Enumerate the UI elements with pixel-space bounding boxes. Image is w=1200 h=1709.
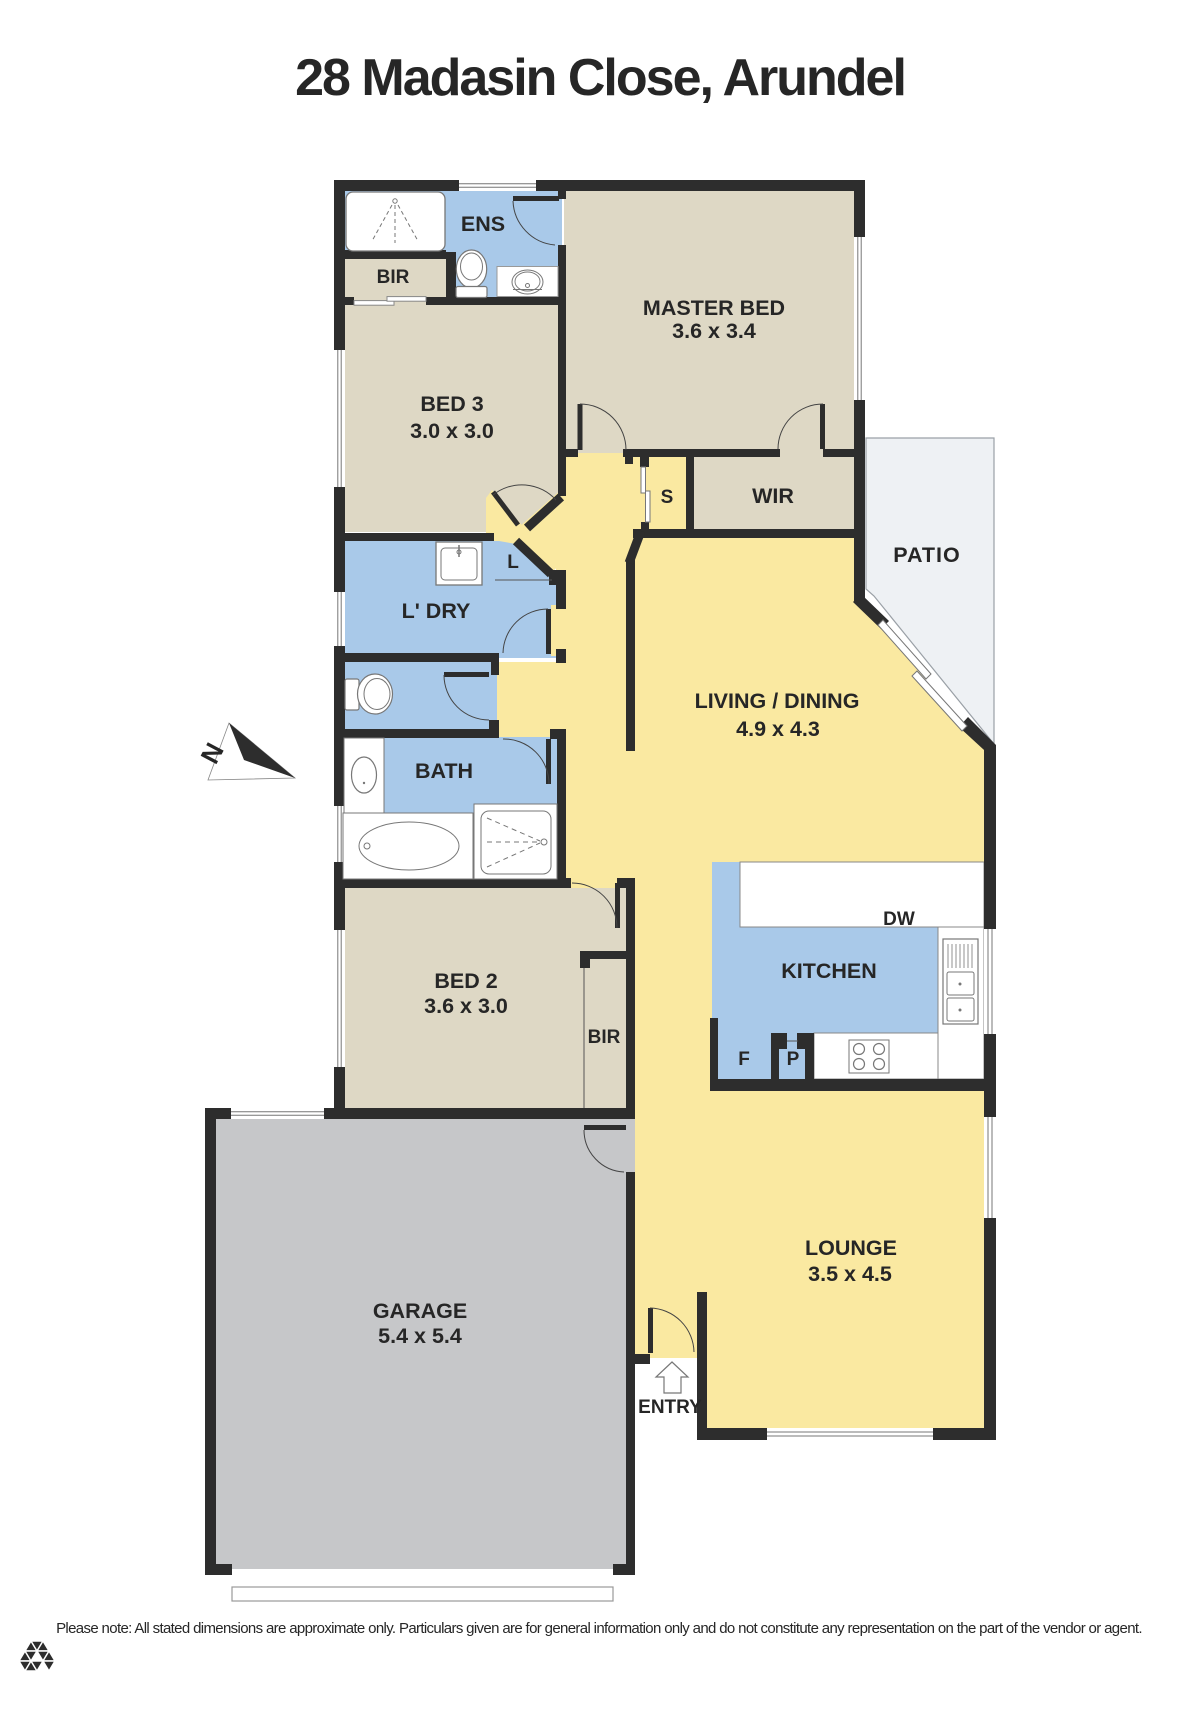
svg-text:BIR: BIR (588, 1027, 621, 1048)
svg-text:Please note: All stated dimens: Please note: All stated dimensions are a… (56, 1620, 1142, 1637)
svg-text:DW: DW (883, 909, 915, 930)
svg-text:LOUNGE: LOUNGE (805, 1236, 897, 1260)
svg-text:BED 3: BED 3 (420, 392, 483, 416)
svg-text:F: F (738, 1049, 750, 1070)
svg-text:PATIO: PATIO (893, 543, 961, 567)
svg-text:3.5 x 4.5: 3.5 x 4.5 (808, 1262, 892, 1286)
svg-text:28 Madasin Close, Arundel: 28 Madasin Close, Arundel (295, 49, 905, 107)
svg-text:ENTRY: ENTRY (638, 1397, 702, 1418)
svg-text:L' DRY: L' DRY (402, 599, 471, 623)
svg-text:BATH: BATH (415, 759, 473, 783)
svg-text:KITCHEN: KITCHEN (781, 959, 877, 983)
svg-text:GARAGE: GARAGE (373, 1299, 467, 1323)
svg-text:ENS: ENS (461, 212, 505, 236)
svg-text:3.6 x 3.4: 3.6 x 3.4 (672, 319, 756, 343)
svg-text:WIR: WIR (752, 484, 794, 508)
svg-text:4.9 x 4.3: 4.9 x 4.3 (736, 717, 820, 741)
svg-text:3.0 x 3.0: 3.0 x 3.0 (410, 419, 494, 443)
svg-text:P: P (787, 1049, 800, 1070)
svg-text:3.6 x 3.0: 3.6 x 3.0 (424, 994, 508, 1018)
svg-text:LIVING / DINING: LIVING / DINING (695, 689, 860, 713)
svg-text:BIR: BIR (377, 267, 410, 288)
svg-text:MASTER BED: MASTER BED (643, 296, 785, 320)
svg-text:5.4 x 5.4: 5.4 x 5.4 (378, 1324, 462, 1348)
svg-text:BED 2: BED 2 (434, 969, 497, 993)
svg-text:L: L (507, 552, 519, 573)
svg-text:S: S (661, 487, 674, 508)
